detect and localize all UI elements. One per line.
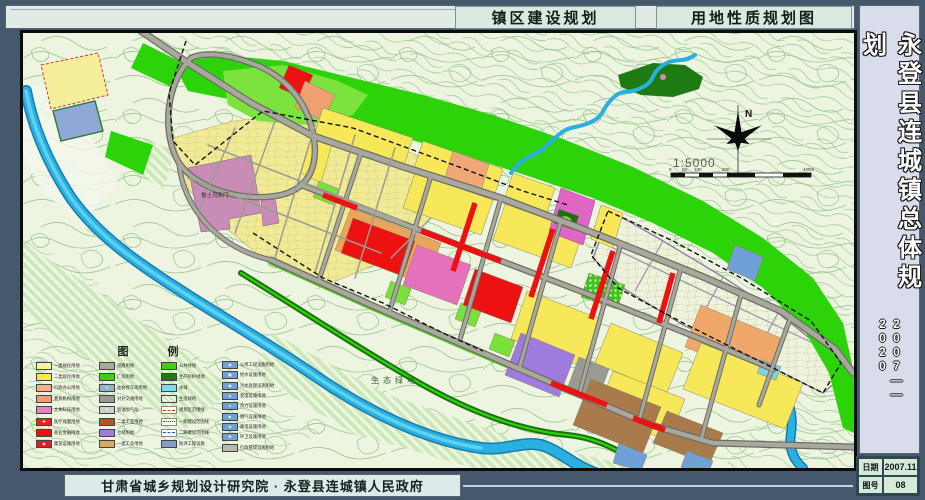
legend-label: 二期建设范围线 — [179, 430, 209, 436]
legend-item: ◆污水处理设施用地 — [222, 381, 274, 391]
legend-item: ✚医疗保健用地 — [36, 416, 99, 427]
legend-swatch: ■ — [222, 413, 238, 421]
legend-item: 防洪工程设施 — [161, 438, 222, 449]
legend-swatch — [36, 362, 52, 370]
legend-label: 教育机构用地 — [54, 396, 80, 402]
legend-label: 行政管理设施用地 — [240, 445, 274, 451]
legend-swatch — [36, 373, 52, 381]
legend-swatch — [36, 406, 52, 414]
legend-swatch — [99, 429, 115, 437]
legend-label: 一类工业用地 — [117, 441, 143, 447]
legend-item: 对外交通用地 — [99, 394, 161, 405]
legend-label: 给水设施用地 — [240, 373, 266, 379]
legend-swatch — [99, 373, 115, 381]
legend-label: 环卫设施用地 — [240, 434, 266, 440]
legend-swatch: ◆ — [36, 440, 52, 448]
legend-label: 集贸设施用地 — [54, 441, 80, 447]
legend-item: 文体科技用地 — [36, 405, 99, 416]
legend-label: 道路用地 — [117, 363, 134, 369]
legend-label: 仓储用地 — [117, 430, 134, 436]
legend-swatch — [161, 429, 177, 437]
legend-swatch: ● — [222, 402, 238, 410]
legend-swatch — [222, 444, 238, 452]
top-rule — [10, 9, 456, 10]
legend-swatch — [161, 406, 177, 414]
legend-item: 道路用地 — [99, 360, 161, 371]
info-table: 日期 2007.11 图号 08 — [856, 456, 920, 496]
legend-swatch: ▣ — [222, 371, 238, 379]
bottom-rule — [463, 485, 853, 487]
legend-item: 一类工业用地 — [99, 438, 161, 449]
legend-item: 行政管理设施用地 — [222, 442, 274, 452]
legend-label: 商业金融用地 — [54, 430, 80, 436]
legend-swatch — [161, 418, 177, 426]
legend-item: 生产防护绿地 — [161, 371, 222, 382]
sheet-no-value: 08 — [883, 476, 918, 494]
legend-item: ●热力设施用地 — [222, 401, 274, 411]
legend-swatch — [99, 395, 115, 403]
legend-column-4: ◉公用工程设施用地▣给水设施用地◆污水处理设施用地▲变电设施用地●热力设施用地■… — [222, 360, 274, 453]
legend-label: 广场用地 — [117, 374, 134, 380]
plan-title-vertical: 永登县连城镇总体规划 — [855, 32, 925, 313]
legend-item: P社会停车场用地 — [99, 382, 161, 393]
legend-swatch — [161, 440, 177, 448]
legend-label: 社会停车场用地 — [117, 385, 147, 391]
plan-sheet: { "titles": { "left_box": "镇区建设规划", "rig… — [0, 0, 925, 500]
legend-label: 邮电设施用地 — [240, 424, 266, 430]
legend-label: 生产防护绿地 — [179, 374, 205, 380]
legend-label: 变电设施用地 — [240, 393, 266, 399]
legend-item: 水域 — [161, 382, 222, 393]
legend-column-3: 公共绿地生产防护绿地水域生态绿地规划区范围线一期建设范围线二期建设范围线防洪工程… — [161, 360, 222, 453]
legend-item: 行政办公用地 — [36, 382, 99, 393]
landmark-label: 鲁土司衙门 — [201, 191, 229, 199]
legend-swatch — [161, 395, 177, 403]
legend-item: 二期建设范围线 — [161, 427, 222, 438]
legend-item: 一类居住用地 — [36, 360, 99, 371]
legend-swatch — [99, 362, 115, 370]
legend-label: 公用工程设施用地 — [240, 362, 274, 368]
legend-swatch — [161, 362, 177, 370]
legend-swatch — [161, 373, 177, 381]
legend-item: 二类工业用地 — [99, 416, 161, 427]
legend-label: 一类居住用地 — [54, 363, 80, 369]
legend-label: 对外交通用地 — [117, 396, 143, 402]
legend-item: ◆集贸设施用地 — [36, 438, 99, 449]
eco-label: 生态绿地 — [371, 375, 419, 385]
legend-column-2: 道路用地广场用地P社会停车场用地对外交通用地P加油加气站二类工业用地仓储用地一类… — [99, 360, 161, 453]
legend-item: 二类居住用地 — [36, 371, 99, 382]
legend-item: 仓储用地 — [99, 427, 161, 438]
legend-swatch: P — [99, 384, 115, 392]
legend-label: 水域 — [179, 385, 188, 391]
legend-item: ▣给水设施用地 — [222, 370, 274, 380]
legend-item: 公共绿地 — [161, 360, 222, 371]
svg-text:100: 100 — [694, 167, 702, 172]
legend-label: 文体科技用地 — [54, 407, 80, 413]
sheet-no-label: 图号 — [858, 476, 883, 494]
legend-swatch: ◈ — [222, 423, 238, 431]
legend-label: 燃气设施用地 — [240, 414, 266, 420]
legend-item: P加油加气站 — [99, 405, 161, 416]
legend-item: ▲变电设施用地 — [222, 391, 274, 401]
legend-item: 商业金融用地 — [36, 427, 99, 438]
legend: 图 例 一类居住用地二类居住用地行政办公用地教育机构用地文体科技用地✚医疗保健用… — [36, 343, 274, 467]
legend-label: 防洪工程设施 — [179, 441, 205, 447]
legend-label: 二类工业用地 — [117, 419, 143, 425]
sidebar: 永登县连城镇总体规划 2007——2020 — [859, 5, 920, 454]
svg-text:200: 200 — [722, 167, 730, 172]
legend-swatch: ◉ — [222, 361, 238, 369]
legend-item: 广场用地 — [99, 371, 161, 382]
legend-label: 公共绿地 — [179, 363, 196, 369]
date-label: 日期 — [858, 458, 883, 476]
legend-swatch: P — [99, 406, 115, 414]
plan-period-vertical: 2007——2020 — [876, 317, 904, 453]
legend-label: 热力设施用地 — [240, 403, 266, 409]
legend-column-1: 一类居住用地二类居住用地行政办公用地教育机构用地文体科技用地✚医疗保健用地商业金… — [36, 360, 99, 453]
legend-label: 加油加气站 — [117, 407, 138, 413]
legend-swatch: ✚ — [36, 418, 52, 426]
legend-swatch — [99, 418, 115, 426]
legend-item: ◈邮电设施用地 — [222, 422, 274, 432]
credit-box: 甘肃省城乡规划设计研究院 · 永登县连城镇人民政府 — [64, 474, 461, 497]
legend-item: ■燃气设施用地 — [222, 411, 274, 421]
legend-item: 生态绿地 — [161, 394, 222, 405]
legend-title: 图 例 — [36, 343, 274, 357]
legend-swatch — [36, 429, 52, 437]
svg-text:400m: 400m — [803, 167, 815, 172]
legend-label: 污水处理设施用地 — [240, 383, 274, 389]
legend-item: ✚环卫设施用地 — [222, 432, 274, 442]
legend-swatch: ✚ — [222, 433, 238, 441]
legend-label: 医疗保健用地 — [54, 419, 80, 425]
legend-swatch — [161, 384, 177, 392]
legend-item: 规划区范围线 — [161, 405, 222, 416]
svg-text:50: 50 — [682, 167, 688, 172]
legend-item: ◉公用工程设施用地 — [222, 360, 274, 370]
legend-swatch: ◆ — [222, 382, 238, 390]
legend-label: 生态绿地 — [179, 396, 196, 402]
legend-swatch — [99, 440, 115, 448]
legend-label: 二类居住用地 — [54, 374, 80, 380]
legend-item: 教育机构用地 — [36, 394, 99, 405]
date-value: 2007.11 — [883, 458, 918, 476]
legend-label: 一期建设范围线 — [179, 419, 209, 425]
legend-swatch — [36, 384, 52, 392]
legend-label: 规划区范围线 — [179, 407, 205, 413]
legend-swatch: ▲ — [222, 392, 238, 400]
north-label: N — [745, 109, 752, 120]
legend-item: 一期建设范围线 — [161, 416, 222, 427]
title-box-left: 镇区建设规划 — [455, 6, 636, 29]
legend-label: 行政办公用地 — [54, 385, 80, 391]
legend-swatch — [36, 395, 52, 403]
title-box-right: 用地性质规划图 — [656, 6, 852, 29]
